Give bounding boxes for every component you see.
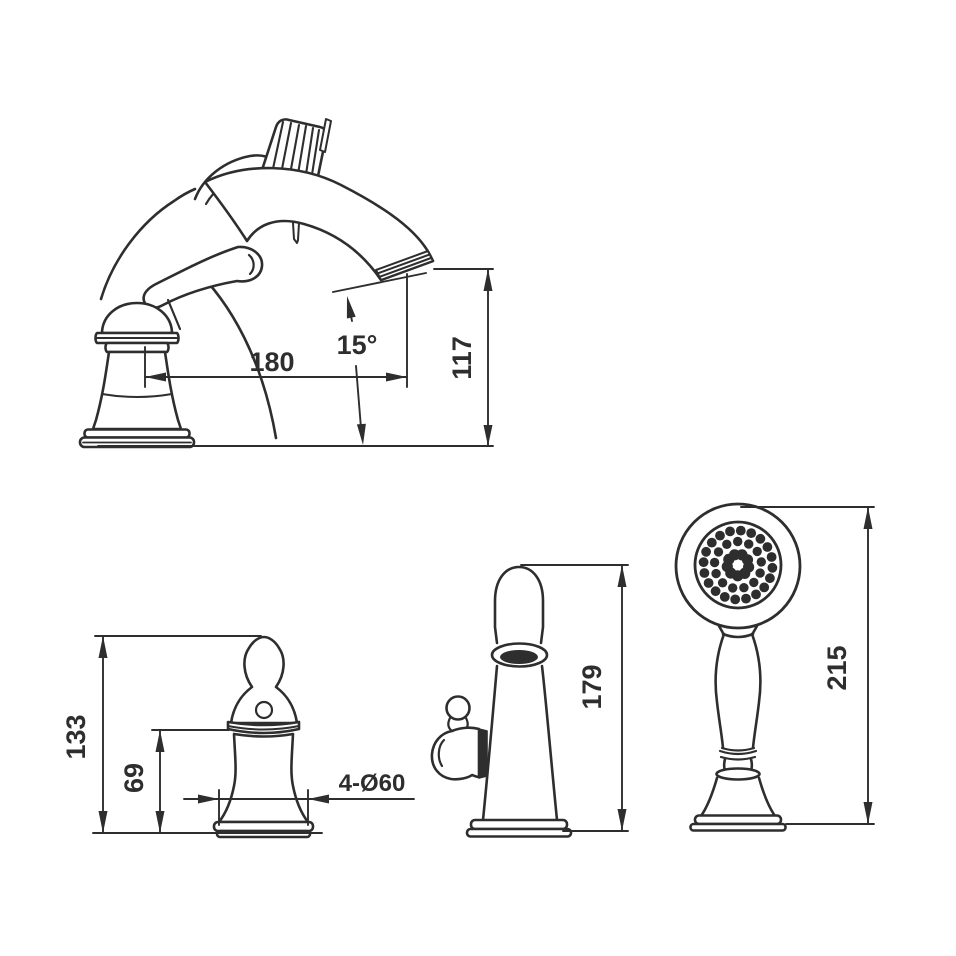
nozzle-dot	[755, 568, 764, 577]
nozzle-dot	[718, 578, 727, 587]
nozzle-dot	[707, 538, 717, 548]
nozzle-dot	[714, 547, 723, 556]
nozzle-dot	[720, 592, 730, 602]
spray-holder-cone-right	[542, 666, 557, 820]
nozzle-dot	[704, 578, 714, 588]
nozzle-dot	[742, 554, 753, 565]
nozzle-dot	[757, 557, 766, 566]
dim-label-179: 179	[577, 664, 607, 709]
nozzle-dot	[711, 569, 720, 578]
angle-leader-arrow	[347, 296, 356, 319]
spray-holder-base-foot	[467, 829, 571, 837]
dim-label-133: 133	[61, 714, 91, 759]
nozzle-dot	[763, 542, 773, 552]
spray-holder-body	[467, 567, 571, 837]
nozzle-dot	[710, 558, 719, 567]
nozzle-dot	[739, 583, 748, 592]
nozzle-dot	[744, 539, 753, 548]
spray-holder-base-plate	[471, 820, 567, 829]
dim-117-arrow-bottom	[484, 425, 493, 446]
technical-drawing-sheet: 180 15° 117	[0, 0, 956, 956]
spray-holder-dome	[495, 567, 543, 643]
nozzle-center-hole	[733, 560, 743, 570]
faucet-pin	[293, 223, 299, 243]
drawing-canvas: 180 15° 117	[0, 0, 956, 956]
dim-label-180: 180	[249, 347, 294, 377]
dim-label-15deg: 15°	[337, 330, 378, 360]
nozzle-dot	[768, 563, 778, 573]
handle-grip-right	[752, 634, 760, 748]
handle-bell-left	[701, 778, 717, 816]
handle-base-plate	[214, 822, 313, 831]
nozzle-dot	[722, 540, 731, 549]
nozzle-dot	[715, 531, 725, 541]
nozzle-dot	[753, 547, 762, 556]
nozzle-dot	[767, 552, 777, 562]
nozzle-dot	[701, 547, 711, 557]
diverter-knob-ball	[447, 697, 470, 720]
faucet-pedestal-base	[80, 303, 194, 447]
nozzle-dot	[725, 527, 735, 537]
view-faucet-side: 180 15° 117	[80, 119, 493, 447]
handle-body	[219, 734, 308, 822]
handle-knob	[214, 637, 313, 837]
spray-holder-opening	[500, 650, 538, 664]
angle-drop-arrow	[357, 424, 366, 445]
nozzle-dot	[749, 578, 758, 587]
diverter-knob-flange	[479, 729, 487, 778]
view-spray-holder-side: 179	[432, 565, 628, 837]
spray-holder-dimensions	[521, 565, 628, 831]
view-handle-front: 133 69 4-Ø60	[61, 636, 414, 837]
nozzle-dot	[741, 594, 751, 604]
handle-grip-left	[716, 634, 724, 748]
nozzle-dot	[759, 583, 769, 593]
nozzle-dot	[730, 595, 740, 605]
nozzle-dot	[699, 557, 709, 567]
handle-bell-right	[759, 778, 775, 816]
dim-180-arrow-right	[386, 373, 407, 382]
handle-base-foot	[691, 824, 786, 831]
dim-117-arrow-top	[484, 269, 493, 291]
nozzle-dot	[728, 583, 737, 592]
hand-shower-dimensions	[741, 507, 874, 824]
hand-shower-handle	[691, 626, 786, 831]
handle-screw	[256, 702, 272, 718]
nozzle-dot	[733, 537, 742, 546]
nozzle-dot	[765, 573, 775, 583]
view-hand-shower-front: 215	[676, 504, 874, 831]
diverter-knob	[432, 697, 487, 780]
dim-label-117: 117	[447, 336, 477, 380]
nozzle-dot	[711, 586, 721, 596]
nozzle-dot	[736, 526, 746, 536]
nozzle-dot	[756, 534, 766, 544]
hand-shower-head	[676, 504, 800, 628]
nozzle-dot	[700, 568, 710, 578]
nozzle-dot	[751, 590, 761, 600]
dim-label-215: 215	[822, 645, 852, 690]
dim-label-4-d60: 4-Ø60	[339, 770, 406, 797]
dim-label-69: 69	[119, 763, 149, 793]
handle-lower-collar	[717, 769, 760, 780]
nozzle-dot	[746, 528, 756, 538]
handle-base-foot	[217, 831, 310, 837]
